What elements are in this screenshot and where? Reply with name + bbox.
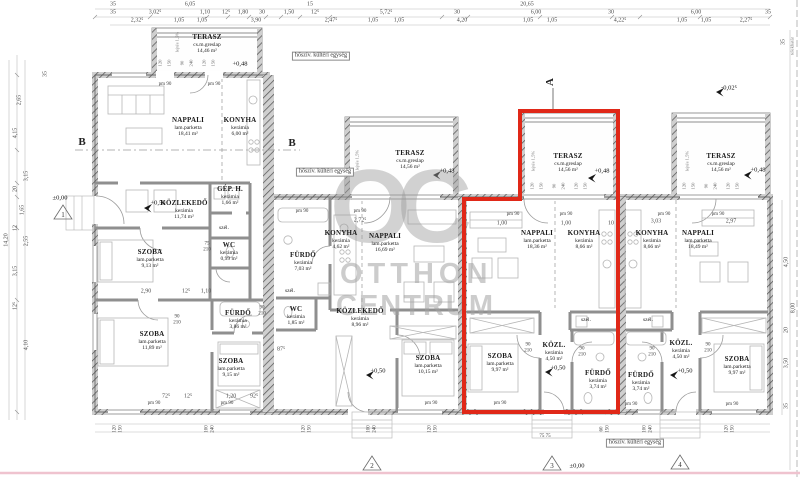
door-swing-label: pm 90	[221, 401, 234, 407]
level-label: +0,48	[750, 166, 765, 173]
room-label-kozlekedo-1: KÖZLEKEDŐ kerámia 11,74 m²	[160, 200, 207, 220]
room-label-szoba-1b: SZOBA lam.parketta 11,89 m²	[138, 331, 165, 351]
room-label-nappali-1: NAPPALI lam.parketta 18,41 m²	[172, 117, 204, 137]
dim-label: 35	[765, 10, 771, 17]
level-label: +0,50	[150, 199, 165, 206]
dim-label: 12⁵	[222, 10, 230, 17]
room-label-furdo-1: FÜRDŐ kerámia 3,86 m²	[225, 310, 251, 330]
dim-label: 2,97	[726, 219, 737, 226]
room-label-szel-1: szél.	[219, 225, 229, 231]
window-size-label: 60150	[599, 425, 611, 433]
watermark-line1: OTTHON	[340, 258, 492, 291]
dim-label: 1,20	[226, 394, 237, 401]
dim-label: 20,65	[520, 2, 534, 9]
room-label-nappali-3: NAPPALI lam.parketta 18,36 m²	[521, 230, 553, 250]
floorplan-canvas: 1 2 3 4 OC OTTHON CENTRUM TERASZ cs.m.gr…	[0, 0, 800, 479]
window-size-label: 90	[703, 184, 708, 189]
dim-label: 12⁵	[182, 289, 190, 296]
dim-label: 72⁵	[162, 394, 170, 401]
room-label-konyha-1: KONYHA kerámia 6,00 m²	[224, 117, 257, 137]
dim-label: 2,72⁵	[354, 218, 367, 225]
dim-label: 15	[307, 2, 313, 9]
heat-pump-label: hőszív. kültéri egység	[292, 52, 350, 61]
window-size-label: 120150	[301, 425, 313, 433]
dim-label: 3,90	[251, 18, 262, 25]
window-size-label: 120	[201, 60, 206, 67]
room-label-kozl-4: KÖZL. kerámia 4,50 m²	[670, 340, 693, 360]
dim-label: 2,55	[24, 236, 31, 247]
room-label-szel-2: szél.	[285, 288, 295, 294]
room-label-nappali-2: NAPPALI lam.parketta 16,69 m²	[369, 233, 401, 253]
window-size-label: 150	[582, 183, 587, 190]
slope-label: lejtés 1,5%	[354, 150, 359, 170]
dim-label: 3,50	[784, 358, 791, 369]
dim-label: 1,00	[561, 221, 572, 228]
room-label-kozlekedo-2: KÖZLEKEDŐ kerámia 8,96 m²	[336, 308, 383, 328]
room-label-geph-1: GÉP. H. kerámia 1,66 m²	[217, 186, 243, 206]
dim-label: 4,10	[24, 340, 31, 351]
dim-label: 35	[784, 403, 791, 409]
door-swing-label: pm 90	[208, 82, 221, 88]
dim-label: 1,05	[197, 18, 208, 25]
door-swing-label: pm 90	[159, 82, 172, 88]
dim-label: 8,00	[791, 303, 798, 314]
dim-label: 1,65	[20, 205, 27, 216]
door-swing-label: pm 90	[658, 212, 671, 218]
dim-label: 20	[13, 186, 20, 192]
axis-marker-4: 4	[678, 461, 682, 469]
room-label-wc-2: WC kerámia 1,85 m²	[287, 306, 305, 326]
door-swing-label: pm 90	[148, 401, 161, 407]
dim-label: 3,03	[651, 219, 662, 226]
level-label: +0,50	[677, 367, 692, 374]
dim-label-overall-height: 14,20	[4, 233, 11, 247]
dim-label: 1,05	[547, 18, 558, 25]
room-label-szoba-4: SZOBA lam.parketta 9,97 m²	[723, 356, 750, 376]
dim-label: 1,05	[174, 18, 185, 25]
opening-size-label: 90210	[524, 342, 532, 354]
dim-label: 4,20	[457, 18, 468, 25]
room-label-szoba-1c: SZOBA lam.parketta 9,15 m²	[217, 358, 244, 378]
dim-label: 1,10	[201, 289, 212, 296]
room-label-kozl-3: KÖZL. kerámia 4,50 m²	[543, 342, 566, 362]
door-swing-label: pm 90	[507, 212, 520, 218]
dim-label: 2,32⁵	[131, 18, 144, 25]
dim-label: 3,02⁵	[149, 10, 162, 17]
opening-size-label: 90210	[648, 346, 656, 358]
door-swing-label: pm 90	[712, 212, 725, 218]
dim-label: 92⁵	[250, 394, 258, 401]
dim-label: 1,05	[394, 18, 405, 25]
window-size-label: 150	[734, 183, 739, 190]
door-swing-label: pm 90	[494, 401, 507, 407]
plot-boundary-label: telekhatár	[789, 37, 794, 55]
axis-marker-1: 1	[61, 211, 65, 219]
dim-label: 1,05	[677, 18, 688, 25]
dim-label: 30	[259, 10, 265, 17]
window-size-label: 150	[538, 183, 543, 190]
room-label-furdo-2: FÜRDŐ kerámia 7,03 m²	[290, 252, 316, 272]
heat-pump-label: hőszív. kültéri egység	[296, 168, 354, 177]
slope-label: lejtés 1,5%	[174, 32, 179, 52]
window-size-label: 240	[560, 183, 565, 190]
window-size-label: 120	[681, 183, 686, 190]
axis-marker-2: 2	[370, 462, 374, 470]
door-swing-label: pm 90	[625, 402, 638, 408]
window-size-label: 100240	[642, 425, 654, 433]
window-size-label: 120	[529, 183, 534, 190]
door-swing-label: pm 90	[296, 209, 309, 215]
window-size-label: 100240	[204, 425, 216, 433]
dim-label: 1,80	[238, 10, 249, 17]
room-label-nappali-4: NAPPALI lam.parketta 18,49 m²	[682, 230, 714, 250]
room-label-szel-4: szél.	[643, 317, 653, 323]
level-label: +0,48	[594, 167, 609, 174]
section-marker-a: A	[544, 78, 556, 86]
room-label-konyha-3: KONYHA kerámia 8,66 m²	[568, 230, 601, 250]
dim-label: 1,05	[701, 18, 712, 25]
room-label-terasz-4: TERASZ cs.m.greslap 14,56 m²	[706, 153, 735, 173]
room-label-terasz-3: TERASZ cs.m.greslap 14,56 m²	[553, 153, 582, 173]
dim-label: 5,72⁵	[380, 10, 393, 17]
dim-label: 35	[110, 10, 116, 17]
window-size-label: 120150	[112, 425, 124, 433]
room-label-szel-3: szél.	[581, 317, 591, 323]
room-label-szoba-3: SZOBA lam.parketta 9,97 m²	[486, 353, 513, 373]
level-label: ±0,00	[570, 462, 585, 469]
door-swing-label: pm 90	[425, 401, 438, 407]
room-label-konyha-4: KONYHA kerámia 8,66 m²	[636, 230, 669, 250]
room-label-konyha-2: KONYHA kerámia 4,62 m²	[325, 230, 358, 250]
dim-label: 10	[608, 221, 614, 228]
heat-pump-label: hőszív. kültéri egység	[606, 439, 664, 448]
dim-label: 12⁵	[184, 394, 192, 401]
dim-label: 1,50	[284, 10, 295, 17]
window-size-label: 120	[157, 60, 162, 67]
door-swing-label: pm 90	[354, 209, 367, 215]
room-label-furdo-4: FÜRDŐ kerámia 3,74 m²	[628, 372, 654, 392]
dim-label: 3,15	[13, 266, 20, 277]
dim-label: 1,10	[200, 10, 211, 17]
opening-size-label: 90210	[173, 314, 181, 326]
dim-label: 12	[13, 225, 20, 231]
window-size-label: 150	[210, 60, 215, 67]
room-label-wc-1: WC kerámia 0,99 m²	[220, 242, 238, 262]
dim-label: 1,05	[523, 18, 534, 25]
section-marker-b: B	[288, 137, 295, 149]
window-size-label: 240	[188, 60, 193, 67]
opening-size-label: 90210	[258, 305, 266, 317]
window-size-label: 120150	[724, 425, 736, 433]
dim-label: 4,15	[13, 128, 20, 139]
opening-size-label: 90210	[578, 346, 586, 358]
dim-label: 35	[781, 39, 788, 45]
window-size-label: 90	[551, 184, 556, 189]
window-size-label: 100240	[366, 425, 378, 433]
level-label: +0,48	[232, 60, 247, 67]
door-swing-label: pm 90	[726, 402, 739, 408]
level-label: +0,50	[550, 364, 565, 371]
room-label-szoba-2: SZOBA lam.parketta 10,15 m²	[414, 355, 441, 375]
dim-label: 87⁵	[277, 347, 285, 354]
dim-label: 6,00	[691, 10, 702, 17]
dim-label: 2,90	[141, 289, 152, 296]
opening-size-label: 90210	[704, 342, 712, 354]
dim-label: 6,00	[531, 10, 542, 17]
window-size-label: 120	[725, 183, 730, 190]
window-size-label: 240	[712, 183, 717, 190]
dim-label: 4,22⁵	[614, 18, 627, 25]
dim-label: 1,00	[497, 221, 508, 228]
window-size-label: 120	[573, 183, 578, 190]
dim-label: 35	[110, 2, 116, 9]
dim-label: 20	[784, 327, 791, 333]
level-label: +0,48	[439, 167, 454, 174]
dim-label: 30	[454, 10, 460, 17]
dim-label: 3,15	[24, 171, 31, 182]
dim-label: 2,47⁵	[325, 18, 338, 25]
dim-label: 6,05	[185, 2, 196, 9]
dim-label: 2,65	[17, 95, 24, 106]
window-size-label: 75 75	[539, 434, 550, 440]
dim-label: 12⁵	[13, 302, 20, 310]
window-size-label: 120150	[427, 425, 439, 433]
window-size-label: 90	[179, 61, 184, 66]
door-swing-label: pm 90	[560, 212, 573, 218]
axis-marker-3: 3	[550, 462, 554, 470]
level-label: -0,02⁵	[721, 84, 737, 91]
window-size-label: 150	[690, 183, 695, 190]
dim-label: 1,05	[368, 18, 379, 25]
slope-label: lejtés 1,5%	[684, 151, 689, 171]
dim-label: 35	[43, 71, 50, 77]
room-label-szoba-1a: SZOBA lam.parketta 9,13 m²	[136, 249, 163, 269]
window-size-label: 150	[166, 60, 171, 67]
level-label: +0,50	[370, 367, 385, 374]
room-label-terasz-1: TERASZ cs.m.greslap 14,46 m²	[192, 34, 221, 54]
room-label-furdo-3: FÜRDŐ kerámia 3,74 m²	[585, 370, 611, 390]
dim-label: 2,27⁵	[740, 18, 753, 25]
section-marker-b: B	[78, 136, 85, 148]
unit-divider-1	[263, 75, 274, 412]
room-label-terasz-2: TERASZ cs.m.greslap 14,56 m²	[395, 150, 424, 170]
dim-label: 30	[608, 10, 614, 17]
level-label: ±0,00	[53, 194, 68, 201]
opening-size-label: 75210	[203, 241, 211, 253]
slope-label: lejtés 1,5%	[530, 151, 535, 171]
dim-label: 4,50	[784, 257, 791, 268]
dim-label: 12⁵	[311, 10, 319, 17]
